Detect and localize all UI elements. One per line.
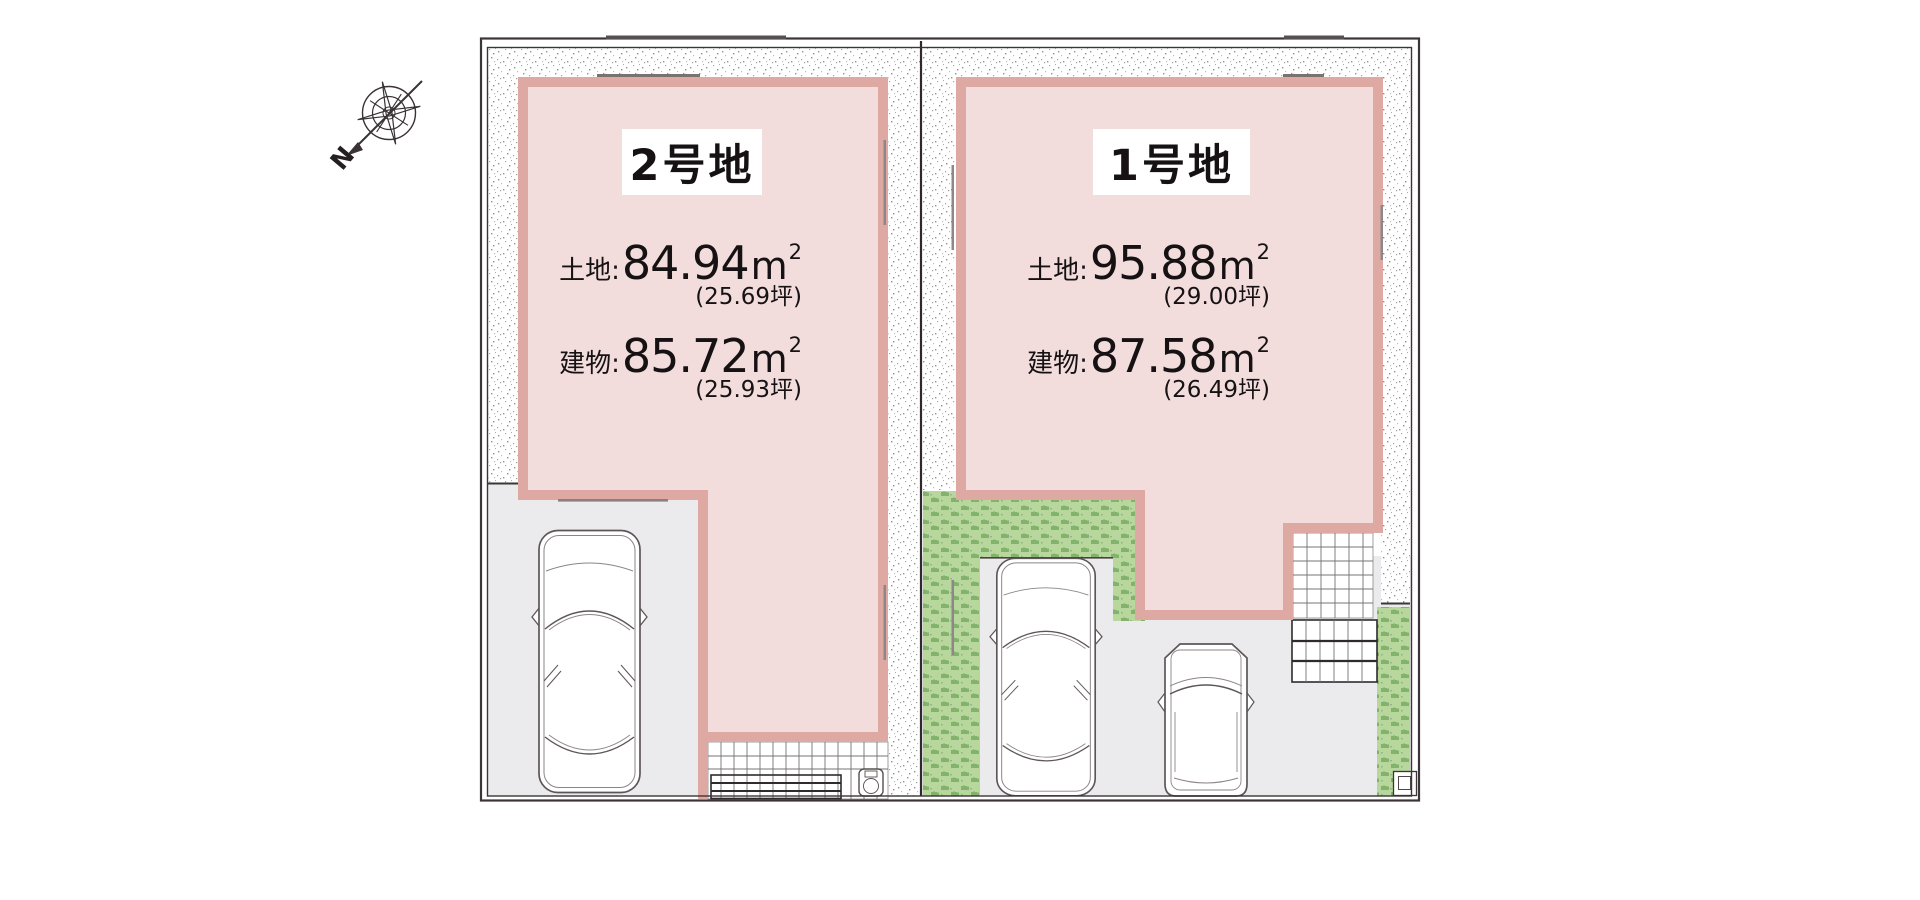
lot1-name-box: 1号地 [1093, 129, 1250, 195]
sqm-unit: m [1219, 247, 1256, 285]
sqm-unit: m [1219, 340, 1256, 378]
site-plan-drawing: N [0, 0, 1920, 900]
lot2-land-value: 84.94 [622, 240, 749, 286]
compass-icon: N [324, 75, 426, 175]
sqm-unit: m [751, 340, 788, 378]
sqm-sup: 2 [789, 242, 802, 263]
lot1-car-main [990, 558, 1102, 795]
lot2-land-label: 土地: [559, 258, 620, 284]
lot1-name: 1号地 [1109, 131, 1234, 193]
lot1-land-label: 土地: [1027, 258, 1088, 284]
lot2-land-tsubo: (25.69坪) [552, 286, 810, 309]
lot1-entrance-steps [1292, 620, 1377, 682]
lot2-car [532, 531, 647, 793]
lot2-building-area-line: 建物: 85.72 m 2 [552, 333, 802, 379]
lot2-building-label: 建物: [559, 351, 620, 377]
lot1-land-value: 95.88 [1090, 240, 1217, 286]
garden-fixture [859, 769, 883, 796]
lot2-land-area-line: 土地: 84.94 m 2 [552, 240, 802, 286]
lot1-building-area-line: 建物: 87.58 m 2 [1020, 333, 1270, 379]
lot1-car-second [1158, 644, 1254, 796]
lot2-porch-side-border [698, 737, 708, 799]
lot1-land-tsubo: (29.00坪) [1020, 286, 1278, 309]
sqm-unit: m [751, 247, 788, 285]
lot2-name-box: 2号地 [622, 129, 762, 195]
lot1-building-label: 建物: [1027, 351, 1088, 377]
lot1-land-area-line: 土地: 95.88 m 2 [1020, 240, 1270, 286]
lot2-name: 2号地 [630, 131, 755, 193]
lot2-building-value: 85.72 [622, 333, 749, 379]
utility-box [1394, 772, 1417, 796]
sqm-sup: 2 [1257, 242, 1270, 263]
lot1-porch-tiles [1292, 533, 1377, 682]
lot2-building-tsubo: (25.93坪) [552, 379, 810, 402]
sqm-sup: 2 [789, 335, 802, 356]
lot1-building-value: 87.58 [1090, 333, 1217, 379]
lot1-building-tsubo: (26.49坪) [1020, 379, 1278, 402]
sqm-sup: 2 [1257, 335, 1270, 356]
